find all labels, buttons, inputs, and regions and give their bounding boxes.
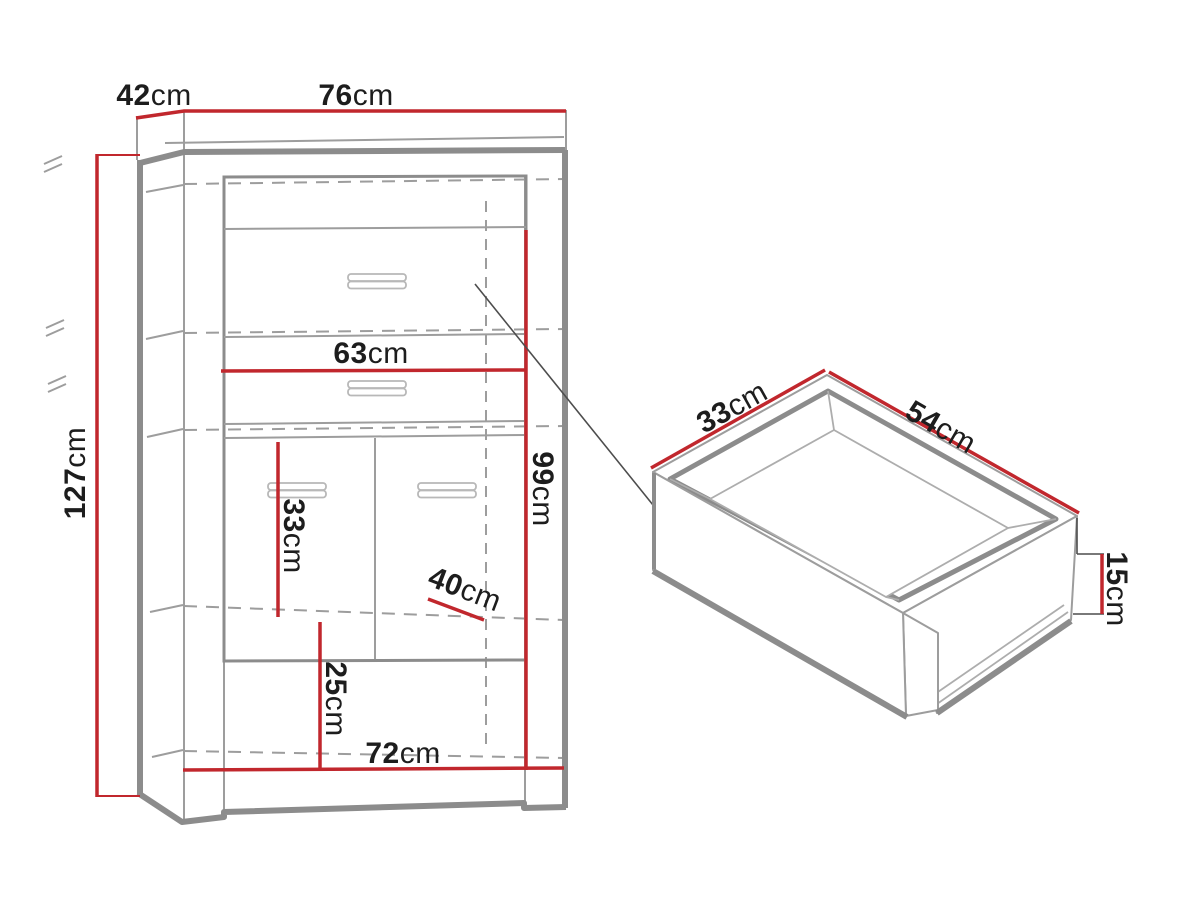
side-panel-dash-5 [152, 750, 183, 757]
break-mark-low [48, 376, 66, 392]
drawer-handle-top [348, 274, 406, 289]
dim-line-shelf-width [221, 370, 527, 371]
handle-bar [418, 491, 476, 498]
handle-bar [348, 274, 406, 281]
handle-bar [348, 381, 406, 388]
label-bottom-section-height: 25cm [320, 661, 353, 736]
label-interior-depth: 40cm [424, 560, 506, 618]
cabinet-top-edge [140, 150, 565, 163]
handle-bar [418, 483, 476, 490]
label-drawer-height: 15cm [1101, 551, 1134, 626]
dashed-shelf-line-1 [184, 179, 564, 184]
label-cabinet-depth: 42cm [116, 79, 191, 112]
cabinet-handles [268, 274, 476, 498]
break-mark-mid [46, 320, 64, 336]
drawer-height-bracket [1073, 518, 1104, 614]
label-interior-width: 72cm [365, 737, 440, 770]
drawer-bottom-line [224, 421, 526, 424]
label-interior-height: 99cm [527, 451, 560, 526]
handle-bar [348, 389, 406, 396]
label-cabinet-height: 127cm [59, 427, 92, 520]
door-handle-right [418, 483, 476, 498]
dashed-shelf-line-3 [184, 426, 564, 430]
dashed-shelf-line-2 [184, 329, 564, 333]
top-panel-back-edge [165, 137, 564, 143]
label-middle-section-height: 33cm [278, 498, 311, 573]
side-panel-dash-3 [147, 429, 183, 437]
cabinet-front-view [44, 110, 566, 822]
cabinet-thin-lines [44, 110, 566, 821]
cabinet-bottom-edge [138, 793, 566, 822]
label-cabinet-width: 76cm [318, 79, 393, 112]
dim-line-depth-width-top [136, 111, 566, 118]
side-panel-dash-2 [146, 331, 183, 339]
top-rail-line [224, 227, 526, 229]
side-panel-dash-1 [146, 185, 183, 192]
drawer-handle-second [348, 381, 406, 396]
handle-bar [348, 282, 406, 289]
diagram-svg: 42cm 76cm 127cm 63cm 99cm 33cm 40cm 25cm… [0, 0, 1200, 899]
side-panel-dash-4 [150, 605, 183, 612]
break-mark-top [44, 156, 62, 172]
furniture-dimension-diagram: 42cm 76cm 127cm 63cm 99cm 33cm 40cm 25cm… [0, 0, 1200, 899]
door-top-line [224, 435, 526, 438]
label-shelf-width: 63cm [333, 337, 408, 370]
